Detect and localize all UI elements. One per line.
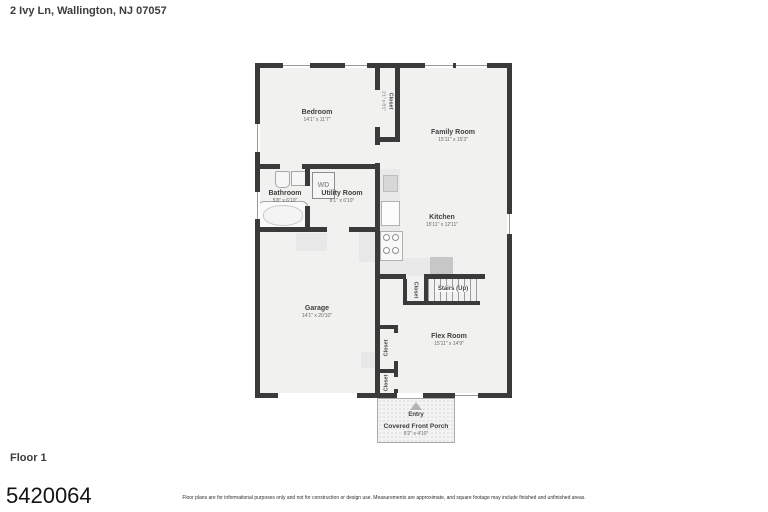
stove-burner [392,234,399,241]
bathtub-icon [258,201,308,230]
room-label-flex-room: Flex Room 15'11" x 14'9" [431,332,467,348]
window [507,214,512,234]
room-dims: 5'8" x 6'10" [268,198,301,205]
stairs-label: Stairs (Up) [436,286,470,292]
window [425,63,453,68]
floor-number-label: Floor 1 [10,452,47,464]
stove-icon [380,231,403,261]
room-name: Bathroom [268,189,301,198]
porch-name: Covered Front Porch [384,423,449,430]
room-dims: 15'11" x 12'11" [426,222,458,229]
garage-door-opening [278,393,357,398]
room-dims: 2'1" x 8'1" [381,91,387,111]
room-name: Bedroom [302,108,333,117]
room-label-utility-room: Utility Room 8'1" x 6'10" [321,189,362,205]
garage-fixture [361,352,376,368]
wall-segment [255,227,327,232]
exterior-wall-left [255,63,260,398]
toilet-icon [275,171,290,188]
wall-segment [424,274,485,279]
stove-burner [383,247,390,254]
stove-burner [392,247,399,254]
room-label-garage: Garage 14'1" x 20'10" [302,304,332,320]
wall-segment [305,169,310,186]
room-label-bedroom: Bedroom 14'1" x 11'7" [302,108,333,124]
room-name: Closet [412,282,419,299]
covered-front-porch: Entry Covered Front Porch 9'2" x 4'10" [377,398,455,443]
entry-label: Entry [408,412,423,418]
room-name: Family Room [431,128,475,137]
wall-segment [375,127,380,145]
window [345,63,367,68]
window [255,124,260,152]
room-label-kitchen: Kitchen 15'11" x 12'11" [426,213,458,229]
room-name: Garage [302,304,332,313]
room-name: Utility Room [321,189,362,198]
room-label-closet-upper: Closet [384,340,391,357]
wall-segment [403,301,480,305]
window [456,63,487,68]
disclaimer-text: Floor plans are for informational purpos… [0,495,768,501]
page-title: 2 Ivy Ln, Wallington, NJ 07057 [10,5,167,17]
garage-fixture [296,233,327,251]
room-label-bathroom: Bathroom 5'8" x 6'10" [268,189,301,205]
window [283,63,310,68]
window [455,393,478,398]
room-label-bedroom-closet: Closet 2'1" x 8'1" [381,91,394,111]
wall-segment [394,361,398,369]
room-dims: 14'1" x 11'7" [302,117,333,124]
room-name: Flex Room [431,332,467,341]
stove-burner [383,234,390,241]
bathtub-basin [263,205,303,226]
entry-arrow-icon [410,402,422,410]
wall-segment [349,227,378,232]
room-dims: 14'1" x 20'10" [302,313,332,320]
porch-dims: 9'2" x 4'10" [404,431,429,437]
dishwasher-icon [383,175,398,192]
refrigerator-icon [430,257,453,275]
garage-fixture [359,231,376,262]
wall-segment [394,373,398,377]
room-label-closet-lower: Closet [384,375,391,392]
room-name: Closet [384,375,391,392]
entry-door-opening [397,393,423,398]
wall-segment [395,63,400,142]
room-label-family-room: Family Room 15'11" x 15'3" [431,128,475,144]
kitchen-sink-icon [381,201,400,226]
room-label-stairs-closet: Closet [412,282,419,299]
room-dims: 15'11" x 15'3" [431,137,475,144]
window [255,192,260,219]
room-dims: 8'1" x 6'10" [321,198,362,205]
wall-segment [394,325,398,333]
room-name: Closet [384,340,391,357]
wall-segment [302,164,378,169]
room-name: Kitchen [426,213,458,222]
room-name: Closet [387,91,394,111]
room-dims: 15'11" x 14'9" [431,341,467,348]
